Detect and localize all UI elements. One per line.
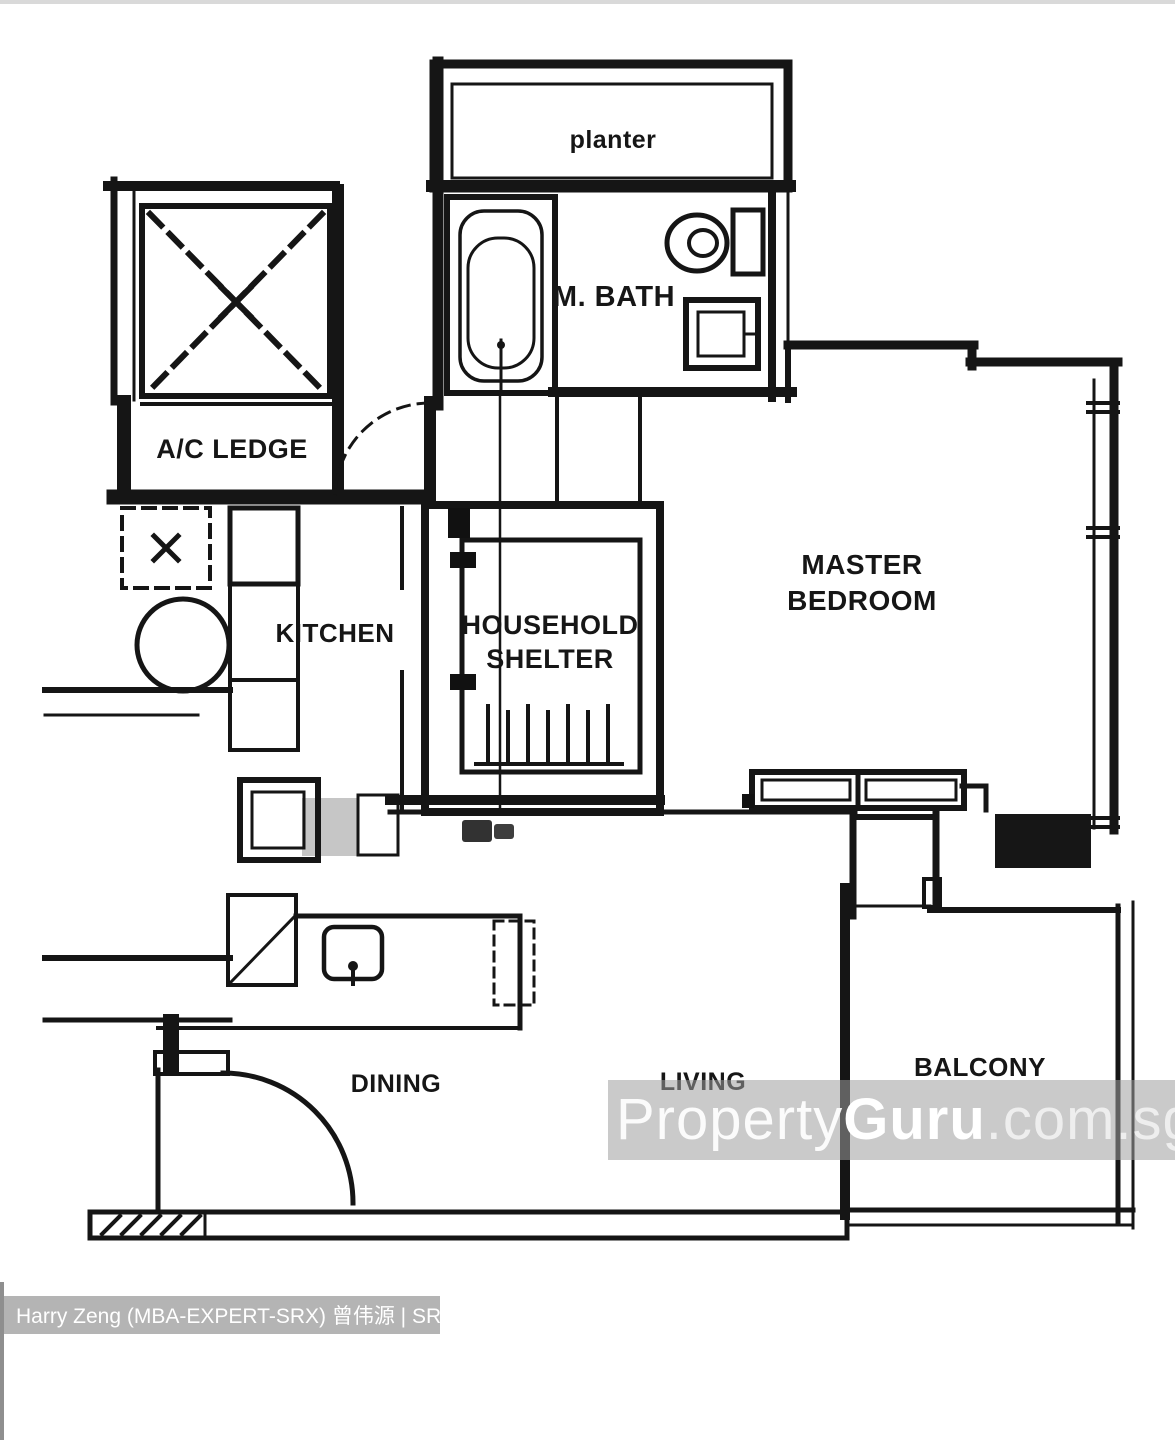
agent-banner: Harry Zeng (MBA-EXPERT-SRX) 曾伟源 | SRX PR…: [4, 1296, 440, 1334]
counter-shaded: [302, 798, 358, 856]
master-bedroom-label-line1: MASTER: [801, 549, 922, 580]
dining-label: DINING: [351, 1070, 442, 1098]
left-wall-stubs: [45, 690, 230, 1064]
kitchen-counters: [155, 508, 534, 1074]
household-shelter-label-line2: SHELTER: [486, 644, 614, 674]
floor-plan-drawing: planter M. BATH A/C LEDGE KITCHEN HOUSEH…: [0, 0, 1175, 1440]
master-bedroom-label-line2: BEDROOM: [787, 585, 937, 616]
master-bath-label: M. BATH: [553, 281, 675, 313]
planter-label: planter: [570, 126, 657, 154]
entrance-door: [158, 1070, 353, 1212]
illegible-stamp: [462, 820, 492, 842]
wash-basin: [686, 300, 758, 368]
ac-ledge-label: A/C LEDGE: [156, 434, 308, 464]
agent-banner-text: Harry Zeng (MBA-EXPERT-SRX) 曾伟源 | SRX PR…: [16, 1300, 576, 1330]
toilet: [667, 210, 763, 274]
ledge-door-arc: [335, 402, 430, 498]
living-label: LIVING: [660, 1068, 746, 1096]
small-ac-unit: [122, 508, 210, 588]
shelter-vent-1: [450, 552, 476, 568]
balcony-walls: [845, 879, 1118, 1215]
round-fixture: [137, 599, 229, 691]
shelter-mark-top: [448, 508, 470, 538]
kitchen-label: KITCHEN: [275, 618, 394, 648]
wardrobe: [742, 772, 986, 810]
kitchen-sink: [324, 927, 382, 984]
shelter-vent-2: [450, 674, 476, 690]
ac-unit: [142, 206, 335, 404]
illegible-stamp-2: [494, 824, 514, 839]
bathtub: [447, 197, 555, 393]
bay-ledge-block: [995, 814, 1091, 868]
floor-plan-screenshot: planter M. BATH A/C LEDGE KITCHEN HOUSEH…: [0, 0, 1175, 1440]
household-shelter-label-line1: HOUSEHOLD: [461, 610, 638, 640]
balcony-label: BALCONY: [914, 1052, 1046, 1082]
bottom-wall: [90, 1212, 847, 1238]
hall-walls: [402, 396, 500, 810]
